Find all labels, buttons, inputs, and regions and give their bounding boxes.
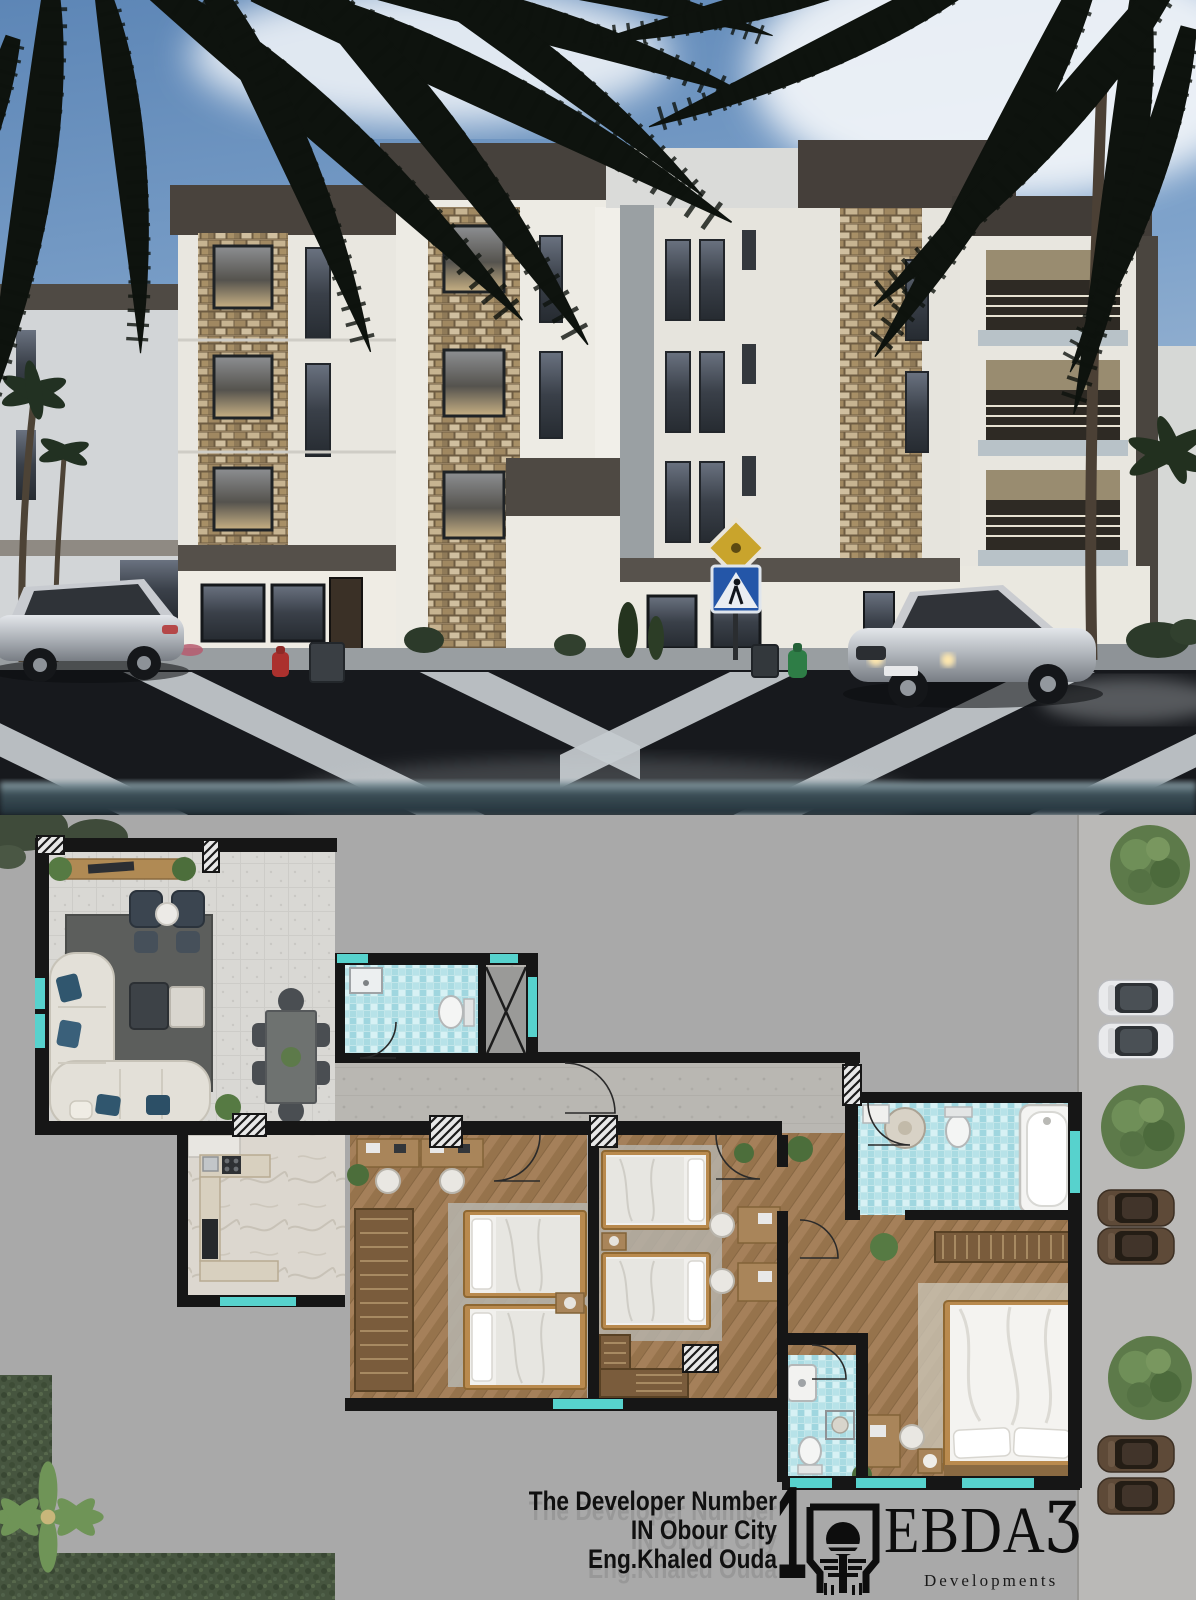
desk-chair xyxy=(710,1269,734,1293)
floor-plan xyxy=(0,815,1196,1600)
pedestrian-crossing-sign xyxy=(712,566,760,612)
ottoman xyxy=(134,931,158,953)
foreground-car-hood xyxy=(0,782,1196,815)
building-render xyxy=(0,0,1196,815)
stove xyxy=(222,1156,241,1174)
pillow xyxy=(953,1428,1010,1459)
desk-chair xyxy=(440,1169,464,1193)
single-bed xyxy=(464,1305,586,1389)
desk-chair xyxy=(376,1169,400,1193)
counter xyxy=(200,1261,278,1281)
single-bed xyxy=(602,1151,710,1229)
building-render-section xyxy=(0,0,1196,815)
desk-chair xyxy=(900,1425,924,1449)
ottoman xyxy=(176,931,200,953)
street-tree xyxy=(1101,1085,1185,1169)
kitchen-sink xyxy=(203,1157,218,1171)
tall-unit xyxy=(202,1219,218,1259)
pillow xyxy=(472,1313,492,1381)
pillow xyxy=(688,1261,704,1321)
coffee-table xyxy=(170,987,204,1027)
toilet xyxy=(946,1115,970,1147)
pillow xyxy=(1013,1428,1070,1459)
toilet xyxy=(799,1437,821,1465)
street-tree xyxy=(1108,1336,1192,1420)
single-bed xyxy=(602,1253,710,1329)
plant xyxy=(787,1136,813,1162)
pillow xyxy=(146,1095,170,1115)
pillow xyxy=(688,1159,704,1221)
desk xyxy=(864,1415,900,1467)
pillow xyxy=(472,1219,492,1289)
trash-bin xyxy=(310,643,344,682)
pillow xyxy=(95,1093,122,1116)
wardrobe xyxy=(935,1232,1078,1262)
trash-bin xyxy=(752,645,778,677)
double-bed xyxy=(944,1301,1078,1477)
street-tree xyxy=(1110,825,1190,905)
cabinet xyxy=(188,1135,240,1157)
plant xyxy=(870,1233,898,1261)
pouf xyxy=(70,1101,92,1119)
plant xyxy=(172,857,196,881)
pillow xyxy=(56,1019,82,1048)
coffee-table xyxy=(130,983,168,1029)
real-estate-flyer: The Developer Number IN Obour City Eng.K… xyxy=(0,0,1196,1600)
single-bed xyxy=(464,1211,586,1297)
centerpiece-plant xyxy=(281,1047,301,1067)
side-table xyxy=(156,903,178,925)
plant xyxy=(347,1164,369,1186)
bathtub xyxy=(1020,1105,1074,1213)
plant xyxy=(48,857,72,881)
floor-plan-section: The Developer Number IN Obour City Eng.K… xyxy=(0,815,1196,1600)
desk-chair xyxy=(710,1213,734,1237)
wardrobe xyxy=(355,1209,413,1391)
plant xyxy=(734,1143,754,1163)
desk xyxy=(738,1207,780,1243)
toilet xyxy=(439,996,463,1028)
